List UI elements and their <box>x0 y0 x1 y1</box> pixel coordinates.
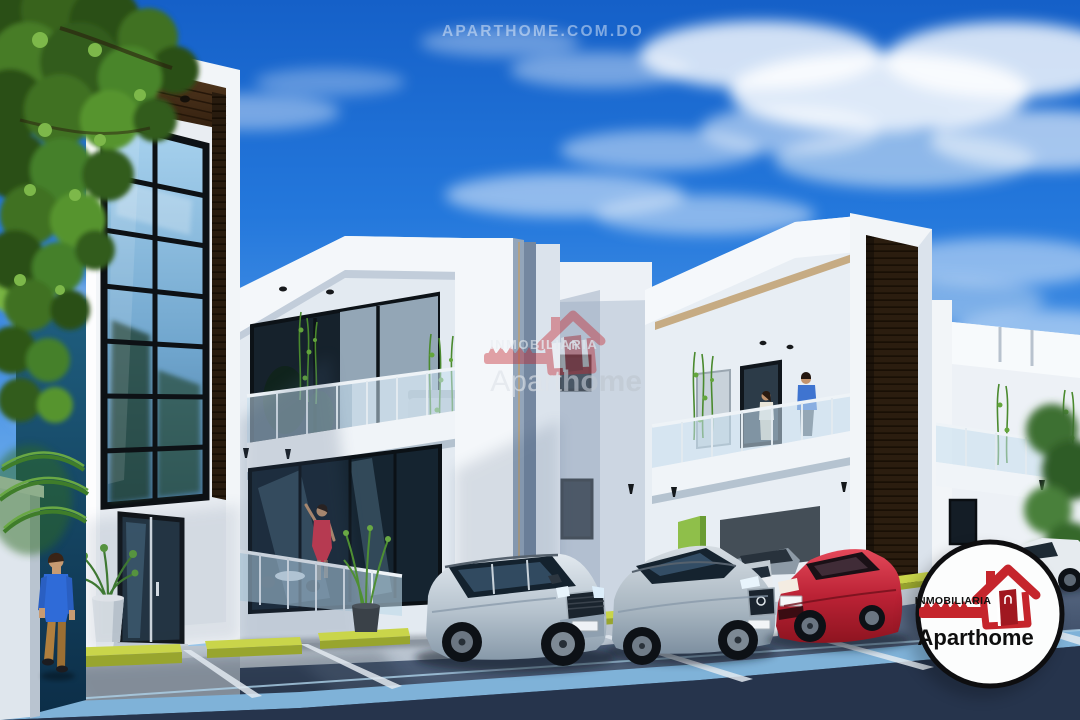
render-canvas: APARTHOME.COM.DO INMOBILIARIA Apart home… <box>0 0 1080 720</box>
center-watermark-inmobiliaria: INMOBILIARIA <box>490 337 598 352</box>
recessed-light <box>180 96 190 103</box>
center-watermark-brand-bold: home <box>562 365 642 398</box>
architectural-render: APARTHOME.COM.DO INMOBILIARIA Apart home… <box>0 0 1080 720</box>
small-window <box>950 500 976 544</box>
silver-suv <box>415 554 615 672</box>
badge-brand-regular: Apart <box>918 625 976 650</box>
center-watermark-brand-regular: Apart <box>490 365 562 398</box>
badge-inmobiliaria: INMOBILIARIA <box>915 595 992 607</box>
top-watermark-text: APARTHOME.COM.DO <box>442 23 644 40</box>
soffit-light <box>279 287 287 292</box>
badge-brand-bold: home <box>975 625 1034 650</box>
soffit-light <box>326 290 334 295</box>
